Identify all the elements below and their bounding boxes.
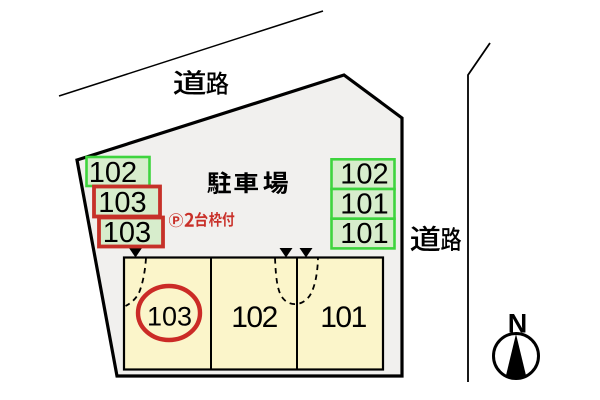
svg-text:103: 103 [103, 217, 151, 249]
svg-text:101: 101 [340, 188, 388, 220]
svg-text:102: 102 [231, 301, 277, 334]
svg-text:102: 102 [89, 157, 137, 189]
svg-text:103: 103 [147, 302, 192, 332]
svg-text:103: 103 [98, 187, 146, 219]
svg-text:N: N [508, 309, 528, 339]
svg-text:101: 101 [340, 218, 388, 250]
svg-text:102: 102 [340, 159, 388, 191]
svg-text:101: 101 [320, 301, 366, 334]
